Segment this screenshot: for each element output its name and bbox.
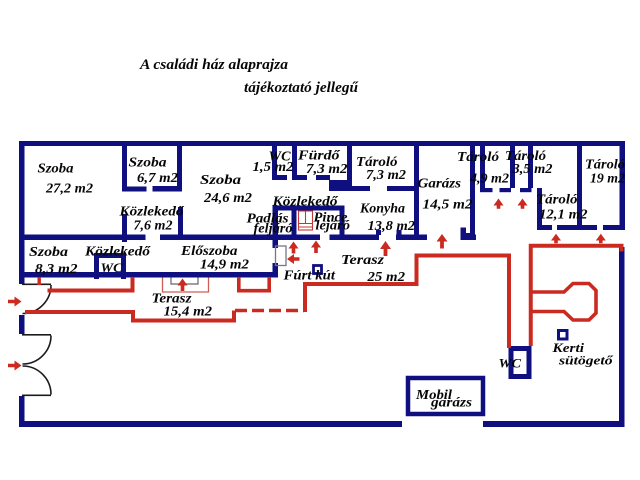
- svg-text:13,8 m2: 13,8 m2: [368, 219, 416, 234]
- svg-text:Fúrt kút: Fúrt kút: [282, 269, 336, 284]
- svg-text:WC: WC: [499, 356, 522, 371]
- svg-text:garázs: garázs: [430, 396, 473, 411]
- svg-text:Közlekedő: Közlekedő: [271, 195, 338, 210]
- svg-text:8,3 m2: 8,3 m2: [35, 262, 78, 277]
- svg-text:tájékoztató jellegű: tájékoztató jellegű: [244, 80, 359, 96]
- svg-text:27,2 m2: 27,2 m2: [45, 182, 93, 197]
- svg-text:Szoba: Szoba: [38, 162, 74, 177]
- svg-text:24,6 m2: 24,6 m2: [203, 191, 252, 206]
- svg-text:Tároló: Tároló: [585, 158, 625, 173]
- svg-text:lejáró: lejáró: [316, 219, 351, 234]
- svg-text:7,6 m2: 7,6 m2: [134, 219, 173, 234]
- svg-text:feljáró: feljáró: [254, 222, 293, 237]
- svg-text:Tároló: Tároló: [536, 193, 578, 208]
- svg-text:7,3 m2: 7,3 m2: [306, 162, 348, 177]
- svg-text:12,1 m2: 12,1 m2: [539, 208, 588, 223]
- svg-text:6,7 m2: 6,7 m2: [137, 171, 178, 186]
- svg-text:7,3 m2: 7,3 m2: [366, 168, 406, 183]
- svg-text:14,9 m2: 14,9 m2: [200, 258, 249, 273]
- svg-text:sütögető: sütögető: [558, 353, 614, 368]
- svg-text:25 m2: 25 m2: [366, 270, 405, 285]
- svg-text:Szoba: Szoba: [29, 245, 68, 260]
- svg-text:4,9 m2: 4,9 m2: [469, 172, 509, 187]
- svg-text:14,5 m2: 14,5 m2: [423, 198, 473, 213]
- svg-text:Tároló: Tároló: [457, 150, 499, 165]
- svg-text:WC: WC: [101, 260, 123, 275]
- svg-text:15,4 m2: 15,4 m2: [164, 305, 213, 320]
- svg-text:19 m2: 19 m2: [590, 172, 625, 187]
- svg-text:Terasz: Terasz: [341, 253, 385, 268]
- svg-text:3,5 m2: 3,5 m2: [511, 162, 552, 177]
- svg-text:Konyha: Konyha: [359, 202, 405, 217]
- svg-text:Közlekedő: Közlekedő: [118, 205, 184, 220]
- svg-text:Közlekedő: Közlekedő: [84, 245, 151, 260]
- svg-text:Garázs: Garázs: [418, 177, 462, 192]
- svg-text:Szoba: Szoba: [200, 173, 241, 188]
- svg-text:Szoba: Szoba: [129, 156, 167, 171]
- svg-text:1,5 m2: 1,5 m2: [253, 160, 294, 175]
- svg-text:A családi ház alaprajza: A családi ház alaprajza: [139, 57, 289, 73]
